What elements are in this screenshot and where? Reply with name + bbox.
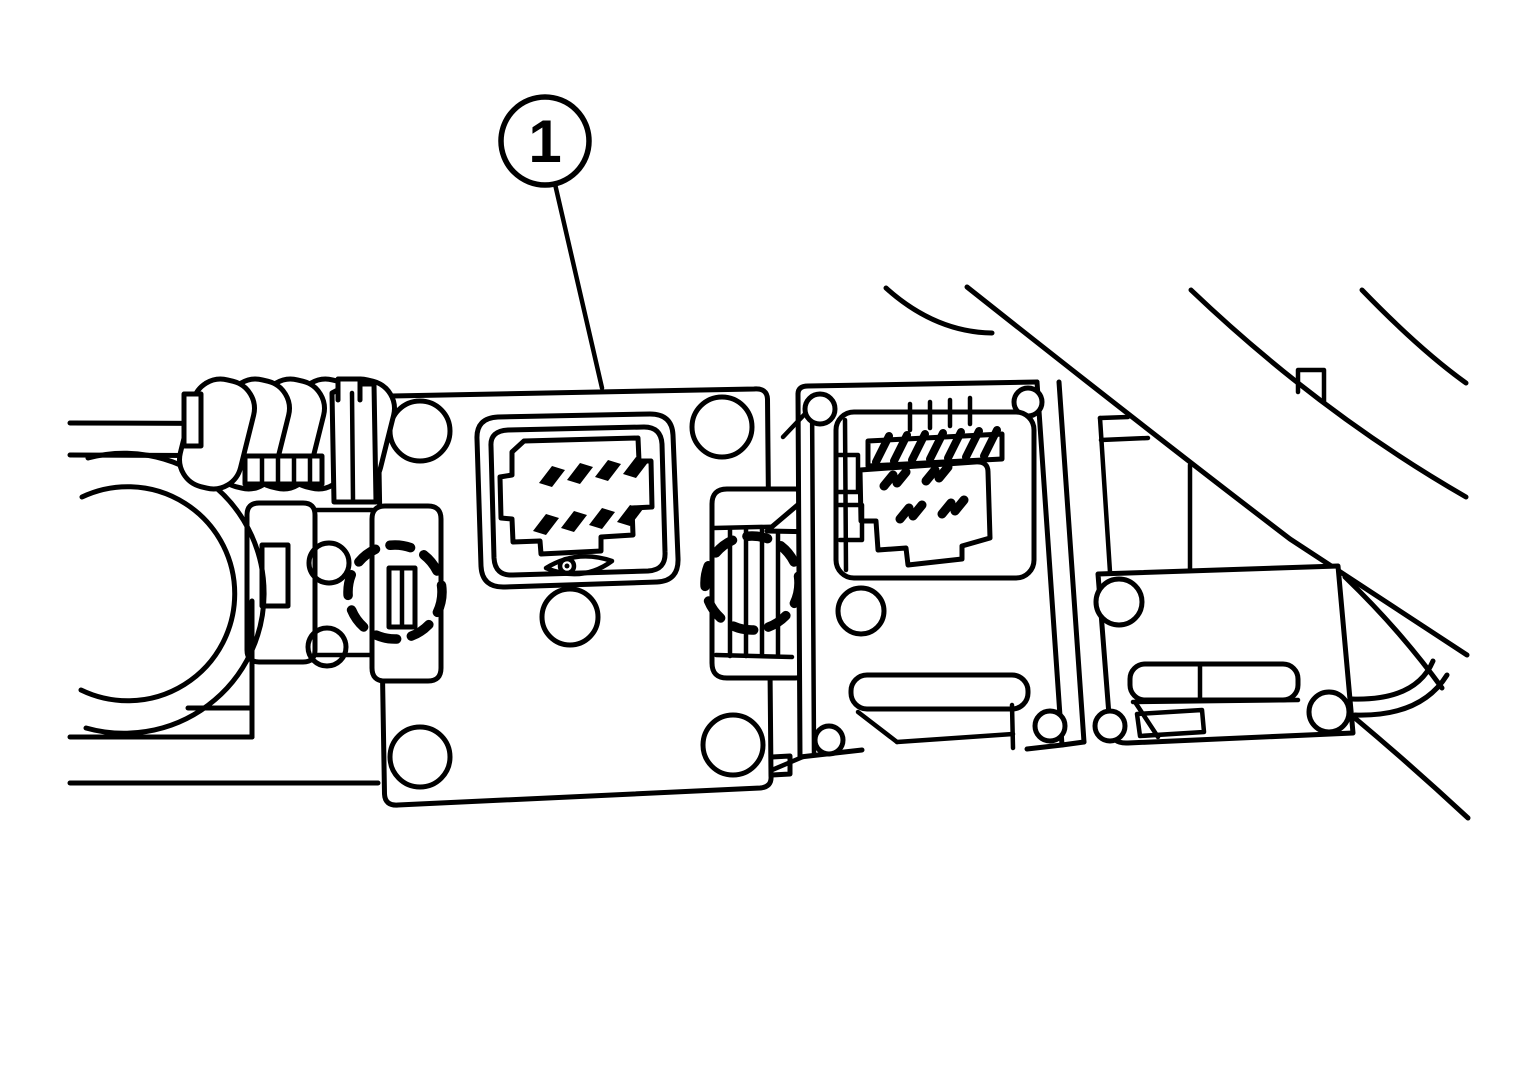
hook-arc-inner — [1355, 675, 1447, 715]
loom-bracket-line — [352, 393, 353, 500]
callout: 1 — [501, 97, 602, 388]
latch-eye-dot — [565, 564, 570, 569]
latch-rail-bottom — [716, 655, 792, 657]
panel-bar-underline — [1133, 700, 1298, 702]
loom-end-tab — [184, 394, 201, 446]
harness-diagonal-short — [1362, 290, 1466, 383]
screw-hole-bottom-right — [703, 715, 763, 775]
panel-hole-corner — [1095, 711, 1125, 741]
remnant-line — [1100, 417, 1128, 418]
callout-label: 1 — [528, 108, 561, 175]
right-hole-bottom-right — [1035, 711, 1065, 741]
screw-hole-bottom-left — [390, 727, 450, 787]
rail-bottom — [1062, 742, 1084, 745]
shell-inner-line — [845, 420, 846, 570]
right-hole-mid — [838, 588, 884, 634]
foot-line — [1012, 705, 1013, 748]
technical-illustration: 1 — [0, 0, 1536, 1087]
screw-hole-top-left — [390, 401, 450, 461]
screw-hole-top-right — [692, 397, 752, 457]
clip-housing-left — [372, 506, 441, 681]
harness-diagonal-lowerB — [1356, 719, 1468, 818]
right-connector — [836, 398, 1034, 578]
right-plate-inner-edge — [812, 396, 814, 753]
remnant-line — [1101, 438, 1148, 440]
background-structure — [1100, 417, 1190, 572]
harness-diagonal-second — [1191, 290, 1466, 497]
wire-loom — [174, 373, 401, 502]
foot-bar — [851, 675, 1028, 709]
bottom-right-panel — [1095, 566, 1353, 743]
loom-bracket-notch — [338, 379, 360, 400]
right-hole-top-left — [805, 394, 835, 424]
callout-leader-line — [555, 184, 602, 388]
cylinder-arc-inner — [81, 487, 235, 701]
panel-hole-top — [1096, 579, 1142, 625]
plate-center-hole — [542, 589, 598, 645]
panel-hole-right — [1309, 692, 1349, 732]
right-plate-left-edge — [798, 394, 800, 757]
right-hole-bottom-left — [815, 726, 843, 754]
hook-arc-outer — [1352, 661, 1433, 699]
